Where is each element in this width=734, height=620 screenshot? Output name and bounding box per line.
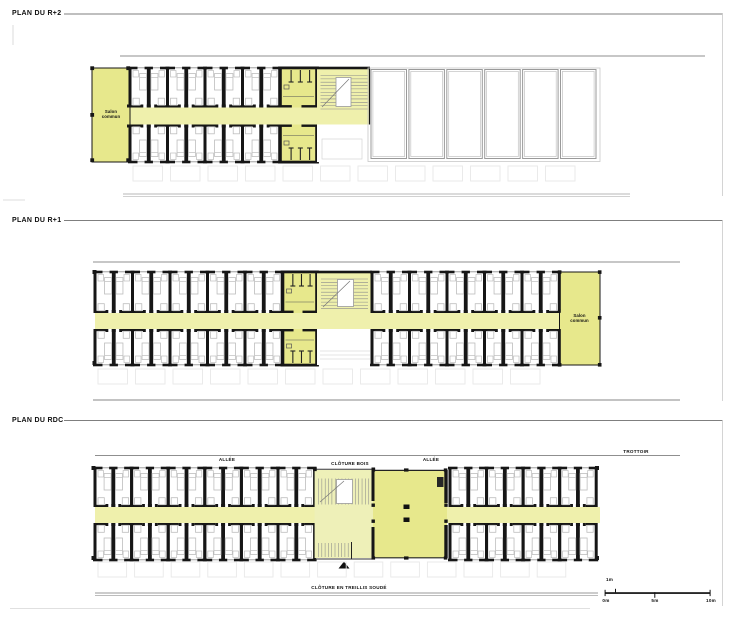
cloture-bois-label: CLÔTURE BOIS [331, 461, 369, 466]
salon-commun-label-r1: Salon commun [559, 313, 600, 323]
drawing-sheet: PLAN DU R+2 PLAN DU R+1 PLAN DU RDC Salo… [0, 0, 734, 620]
floorplan-canvas [0, 0, 734, 620]
allee-left-label: ALLÉE [219, 457, 235, 462]
trottoir-label: TROTTOIR [623, 449, 648, 454]
allee-right-label: ALLÉE [423, 457, 439, 462]
scale-1m-label: 1m [606, 577, 613, 582]
scale-10m-label: 10m [706, 598, 716, 603]
salon-commun-label-r2: Salon commun [92, 109, 130, 119]
plan-r2-title: PLAN DU R+2 [12, 10, 61, 17]
cloture-treillis-label: CLÔTURE EN TREILLIS SOUDÉ [311, 585, 386, 590]
plan-r1-title: PLAN DU R+1 [12, 217, 61, 224]
scale-5m-label: 5m [651, 598, 658, 603]
plan-rdc-title: PLAN DU RDC [12, 417, 64, 424]
scale-0m-label: 0m [602, 598, 609, 603]
